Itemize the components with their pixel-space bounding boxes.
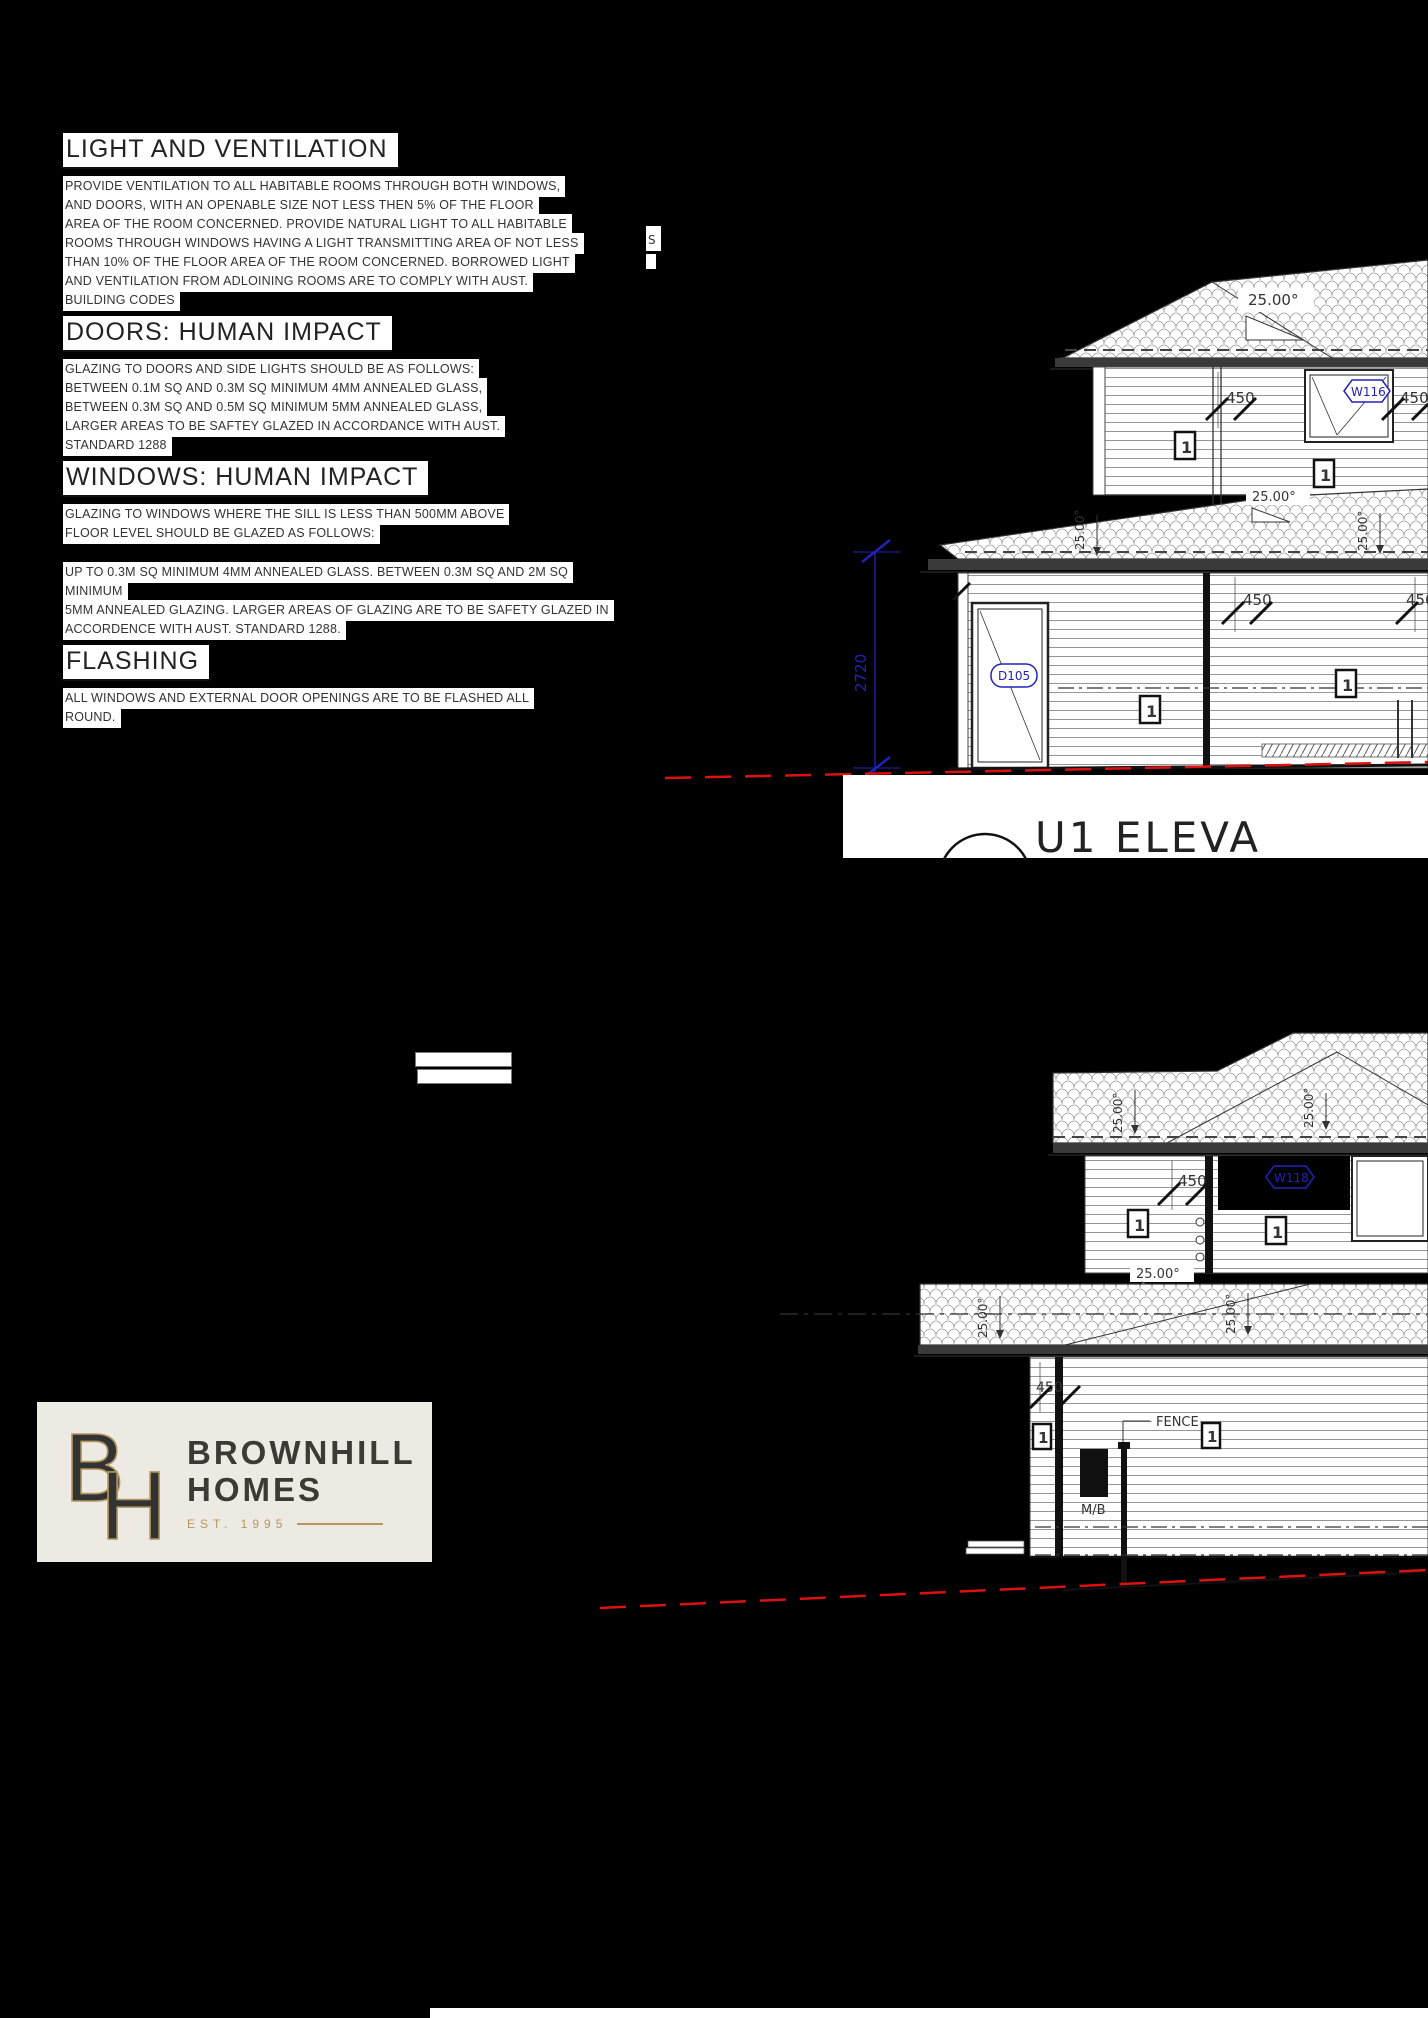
section-title-flashing: FLASHING xyxy=(63,645,563,681)
svg-text:25.00°: 25.00° xyxy=(1224,1294,1238,1334)
note-line: BETWEEN 0.3M SQ AND 0.5M SQ MINIMUM 5MM … xyxy=(63,397,563,416)
note-line: 5MM ANNEALED GLAZING. LARGER AREAS OF GL… xyxy=(63,600,563,619)
pitch-label-rotated: 25.00° xyxy=(1224,1294,1238,1334)
dim-2720-label: 2720 xyxy=(852,654,870,692)
cladding-marker: 1 xyxy=(1146,702,1157,721)
pitch-label-rotated: 25.00° xyxy=(1073,510,1087,550)
note-line: FLOOR LEVEL SHOULD BE GLAZED AS FOLLOWS: xyxy=(63,523,563,542)
svg-text:25.00°: 25.00° xyxy=(976,1298,990,1338)
clipped-strip xyxy=(415,1052,512,1067)
elevation-2-drawing: 25.00° 25.00° W118 450 1 1 xyxy=(590,1000,1428,1620)
note-line: AND VENTILATION FROM ADLOINING ROOMS ARE… xyxy=(63,271,563,290)
logo-wordmark: BROWNHILL HOMES EST. 1995 xyxy=(187,1434,416,1531)
svg-text:25.00°: 25.00° xyxy=(1302,1088,1316,1128)
door-tag: D105 xyxy=(998,669,1030,683)
cladding-marker: 1 xyxy=(1038,1429,1048,1447)
step xyxy=(968,1541,1024,1547)
pitch-label-rotated: 25.00° xyxy=(1356,511,1370,551)
dim-450: 450 xyxy=(1406,591,1428,609)
note-line: MINIMUM xyxy=(63,581,563,600)
note-line: ACCORDENCE WITH AUST. STANDARD 1288. xyxy=(63,619,563,638)
note-line: BUILDING CODES xyxy=(63,290,563,309)
cladding-marker: 1 xyxy=(1134,1216,1145,1235)
note-line: UP TO 0.3M SQ MINIMUM 4MM ANNEALED GLASS… xyxy=(63,562,563,581)
meter-box xyxy=(1080,1449,1108,1497)
wall-divider xyxy=(1203,573,1210,768)
logo-name-line1: BROWNHILL xyxy=(187,1434,416,1471)
note-line: BETWEEN 0.1M SQ AND 0.3M SQ MINIMUM 4MM … xyxy=(63,378,563,397)
note-line: ALL WINDOWS AND EXTERNAL DOOR OPENINGS A… xyxy=(63,688,563,707)
gutter-bracket xyxy=(1196,1253,1204,1261)
pitch-label-rotated: 25.00° xyxy=(976,1298,990,1338)
mid-roof-tiles xyxy=(940,489,1428,559)
lower-eave-gutter xyxy=(928,559,1428,570)
notes-column: LIGHT AND VENTILATION PROVIDE VENTILATIO… xyxy=(63,126,563,726)
svg-text:25.00°: 25.00° xyxy=(1073,510,1087,550)
elevation-title: U1 ELEVA xyxy=(1035,813,1261,860)
cladding-marker: 1 xyxy=(1320,466,1331,485)
svg-text:2720: 2720 xyxy=(852,654,870,692)
note-gap xyxy=(63,542,563,562)
note-line: LARGER AREAS TO BE SAFTEY GLAZED IN ACCO… xyxy=(63,416,563,435)
gutter-bracket xyxy=(1196,1236,1204,1244)
step xyxy=(966,1548,1024,1554)
note-line: STANDARD 1288 xyxy=(63,435,563,454)
pitch-label-rotated: 25.00° xyxy=(1111,1093,1125,1133)
note-line: ROOMS THROUGH WINDOWS HAVING A LIGHT TRA… xyxy=(63,233,563,252)
drawing-sheet: LIGHT AND VENTILATION PROVIDE VENTILATIO… xyxy=(0,0,1428,2018)
ground-line xyxy=(1063,1572,1428,1590)
cladding-marker: 1 xyxy=(1342,676,1353,695)
dim-450: 450 xyxy=(1400,389,1428,407)
svg-text:25.00°: 25.00° xyxy=(1111,1093,1125,1133)
eave-gutter xyxy=(918,1345,1428,1354)
upper-eave-gutter xyxy=(1055,358,1428,367)
wall-corner-trim xyxy=(1093,367,1105,495)
section-title-windows-impact: WINDOWS: HUMAN IMPACT xyxy=(63,461,563,497)
fence-post-cap xyxy=(1118,1442,1130,1449)
deck-hatch-strip xyxy=(1262,744,1428,757)
note-line: AND DOORS, WITH AN OPENABLE SIZE NOT LES… xyxy=(63,195,563,214)
note-line: GLAZING TO WINDOWS WHERE THE SILL IS LES… xyxy=(63,504,563,523)
brownhill-homes-logo: B H BROWNHILL HOMES EST. 1995 xyxy=(37,1402,432,1562)
meter-box-label: M/B xyxy=(1081,1503,1106,1518)
note-line: PROVIDE VENTILATION TO ALL HABITABLE ROO… xyxy=(63,176,563,195)
svg-text:H: H xyxy=(99,1454,168,1551)
clipped-strip xyxy=(417,1069,512,1084)
elevation-u1-drawing: S 25.00° W116 450 xyxy=(645,195,1428,860)
window-tag: W118 xyxy=(1274,1171,1309,1185)
gutter-bracket xyxy=(1196,1218,1204,1226)
cladding-marker: 1 xyxy=(1272,1223,1283,1242)
clipped-label-box xyxy=(646,254,656,269)
pitch-label-rotated: 25.00° xyxy=(1302,1088,1316,1128)
roof-tiles xyxy=(1053,1033,1428,1143)
logo-est-text: EST. 1995 xyxy=(187,1517,287,1531)
section-title-light-ventilation: LIGHT AND VENTILATION xyxy=(63,133,563,169)
cladding-marker: 1 xyxy=(1181,438,1192,457)
note-line: ROUND. xyxy=(63,707,563,726)
note-line: THAN 10% OF THE FLOOR AREA OF THE ROOM C… xyxy=(63,252,563,271)
cladding-marker: 1 xyxy=(1207,1428,1217,1446)
window-tag: W116 xyxy=(1351,385,1386,399)
fence-label: FENCE xyxy=(1156,1415,1199,1430)
logo-name-line2: HOMES xyxy=(187,1471,416,1508)
section-title-doors-impact: DOORS: HUMAN IMPACT xyxy=(63,316,563,352)
svg-text:25.00°: 25.00° xyxy=(1356,511,1370,551)
note-line: AREA OF THE ROOM CONCERNED. PROVIDE NATU… xyxy=(63,214,563,233)
natural-ground-red-dash xyxy=(600,1570,1428,1608)
pitch-label: 25.00° xyxy=(1248,291,1298,309)
pitch-label: 25.00° xyxy=(1252,490,1296,505)
note-line: GLAZING TO DOORS AND SIDE LIGHTS SHOULD … xyxy=(63,359,563,378)
fence-post xyxy=(1121,1449,1127,1587)
clipped-label-text: S xyxy=(648,233,656,247)
clipped-title-block-strip xyxy=(430,2008,1428,2018)
wall-corner-trim xyxy=(958,573,968,768)
logo-est-rule xyxy=(297,1523,383,1525)
dim-tick-blue xyxy=(862,540,890,562)
window xyxy=(1352,1156,1428,1241)
logo-est-row: EST. 1995 xyxy=(187,1517,416,1531)
bh-monogram-icon: B H xyxy=(55,1413,173,1551)
pitch-label: 25.00° xyxy=(1136,1267,1180,1282)
eave-gutter xyxy=(1053,1143,1428,1153)
